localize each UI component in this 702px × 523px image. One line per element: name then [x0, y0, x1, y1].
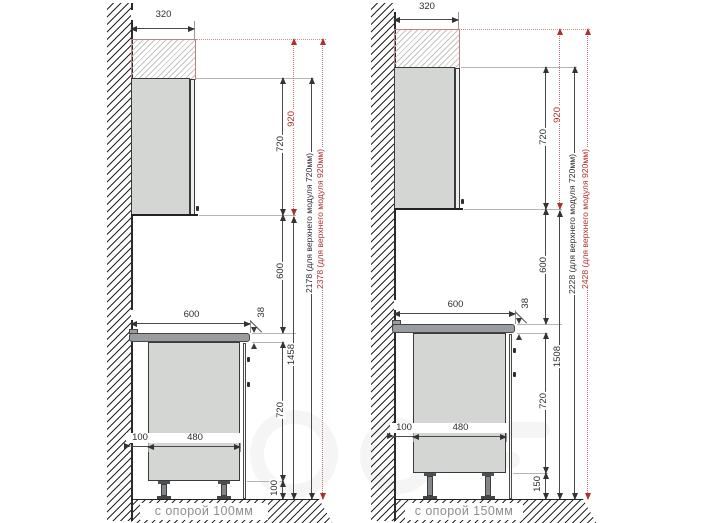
dim-label: 2178 (для верхнего модуля 720мм)	[305, 152, 314, 294]
arrow	[516, 318, 522, 324]
dim-label: 720	[539, 392, 549, 410]
dim-label: 1458	[287, 343, 297, 366]
dim-countertop-width-left	[131, 323, 250, 324]
dim-wall-gap-right	[394, 436, 413, 437]
caption-right: с опорой 150мм	[405, 503, 523, 520]
dim-label: 320	[131, 10, 196, 20]
dim-upper-width-right	[394, 19, 458, 20]
dim-label: 480	[413, 423, 508, 433]
dim-label: 920	[553, 106, 563, 124]
upper-door-knob-left	[196, 206, 199, 211]
cabinet-leg	[482, 473, 494, 499]
dim-upper-width-left	[131, 28, 194, 29]
cabinet-leg	[424, 473, 436, 499]
dim-label: 480	[148, 433, 242, 443]
dim-label: 720	[539, 128, 549, 146]
dim-label: 2428 (для верхнего модуля 920мм)	[581, 148, 590, 290]
caption-left: с опорой 100мм	[140, 503, 268, 520]
base-knob-left-1	[247, 357, 250, 362]
upper-cabinet-door-left	[190, 79, 195, 215]
countertop-right	[392, 324, 515, 333]
dim-label: 38	[257, 306, 267, 319]
dim-label: 600	[539, 256, 549, 274]
base-front-panel-left	[243, 343, 246, 499]
upper-cabinet-right	[394, 67, 455, 209]
extension-line	[252, 333, 296, 334]
dim-label: 320	[394, 2, 460, 12]
extension-line	[517, 324, 562, 325]
base-front-panel-right	[509, 334, 512, 499]
dim-label: 150	[533, 475, 543, 493]
dim-label: 600	[276, 262, 286, 280]
arrow	[251, 343, 257, 349]
dim-label: 600	[131, 310, 252, 320]
arrow	[251, 327, 257, 333]
watermark	[240, 400, 570, 490]
dim-label: 920	[287, 110, 297, 128]
dim-label: 720	[276, 135, 286, 153]
upper-cabinet-left	[131, 78, 190, 215]
cabinet-leg	[158, 481, 170, 499]
extension-line	[196, 78, 314, 79]
base-knob-left-2	[247, 382, 250, 387]
countertop-left	[129, 333, 250, 342]
diagram-canvas: с опорой 100мм 320 600 100 480 38 720 60…	[0, 0, 702, 523]
dim-wall-gap-left	[131, 446, 148, 447]
upper-cabinet-bottom-edge-right	[394, 208, 463, 210]
dim-countertop-width-right	[394, 313, 515, 314]
dim-label: 2228 (для верхнего модуля 720мм)	[568, 153, 577, 295]
dim-label: 100	[270, 479, 280, 497]
dim-base-depth-left	[148, 446, 240, 447]
dim-base-depth-right	[413, 436, 506, 437]
cabinet-leg	[218, 481, 230, 499]
upper-extension-zone-right	[394, 29, 460, 69]
base-knob-right-2	[513, 372, 516, 377]
base-cabinet-left	[148, 342, 240, 481]
dim-label: 2378 (для верхнего модуля 920мм)	[316, 148, 325, 290]
dim-label: 1508	[553, 345, 563, 368]
upper-cabinet-bottom-edge-left	[131, 214, 198, 216]
arrow	[516, 334, 522, 340]
base-cabinet-right	[413, 333, 506, 473]
wall-hatch-right	[371, 3, 396, 521]
upper-door-knob-right	[461, 199, 464, 204]
upper-extension-zone-left	[131, 39, 196, 80]
base-knob-right-1	[513, 348, 516, 353]
dim-leg-height-right	[545, 473, 546, 499]
dim-label: 600	[394, 300, 517, 310]
extension-line	[196, 39, 326, 40]
dim-label: 38	[521, 297, 531, 310]
upper-cabinet-door-right	[455, 68, 460, 209]
extension-line	[461, 29, 590, 30]
dim-leg-height-left	[282, 481, 283, 499]
dim-label: 720	[276, 401, 286, 419]
